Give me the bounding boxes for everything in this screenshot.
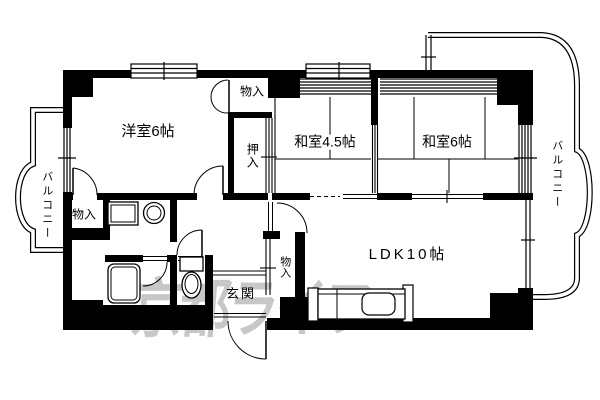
window-hatch-washitsu6 [380,79,497,94]
room-label-washitsu45: 和室4.5帖 [292,135,357,150]
bathroom-threshold [143,257,167,261]
room-label-entrance: 玄関 [226,287,256,301]
fixtures [108,202,413,322]
closet-label-storage-entrance: 物入 [278,256,290,278]
balcony-label-right: バルコニー [550,140,562,210]
door-storage-top-double [211,80,229,113]
entrance-threshold [214,314,266,318]
room-label-western: 洋室6帖 [121,124,174,140]
door-hall-ldk [269,202,308,233]
floorplan-svg [0,0,600,400]
wash-basin-icon [144,203,165,224]
door-toilet [177,230,202,256]
room-label-washitsu6: 和室6帖 [420,135,474,150]
slider-storage-entrance [260,239,276,295]
window-washitsu45-top [306,62,370,80]
door-western-entry [194,166,223,195]
closet-label-oshiire: 押入 [246,143,259,169]
genkan-step [213,271,266,275]
door-entrance [228,321,266,359]
window-hatch-washitsu45 [300,79,371,94]
kitchen-counter-icon [308,285,413,322]
door-western-storage [73,168,97,195]
closet-label-storage-top: 物入 [240,86,264,99]
balcony-label-left: バルコニー [40,171,52,241]
slider-washitsu45-ldk [343,195,377,199]
closet-label-storage-bottom-left: 物入 [72,209,96,222]
fusuma-washitsu-divider [373,125,378,193]
door-bathroom [143,262,167,286]
room-label-ldk: LDK10帖 [369,247,448,263]
slider-washitsu6-ldk [412,190,483,203]
kitchen-sink-icon [362,293,395,315]
floorplan-image: 京都ライフ [0,0,600,400]
tatami-washitsu45 [275,97,371,159]
bathtub-icon [108,264,140,303]
window-western-top [131,62,197,80]
window-ldk-right [521,200,535,288]
washing-machine-icon [108,202,138,225]
toilet-icon [180,257,203,298]
